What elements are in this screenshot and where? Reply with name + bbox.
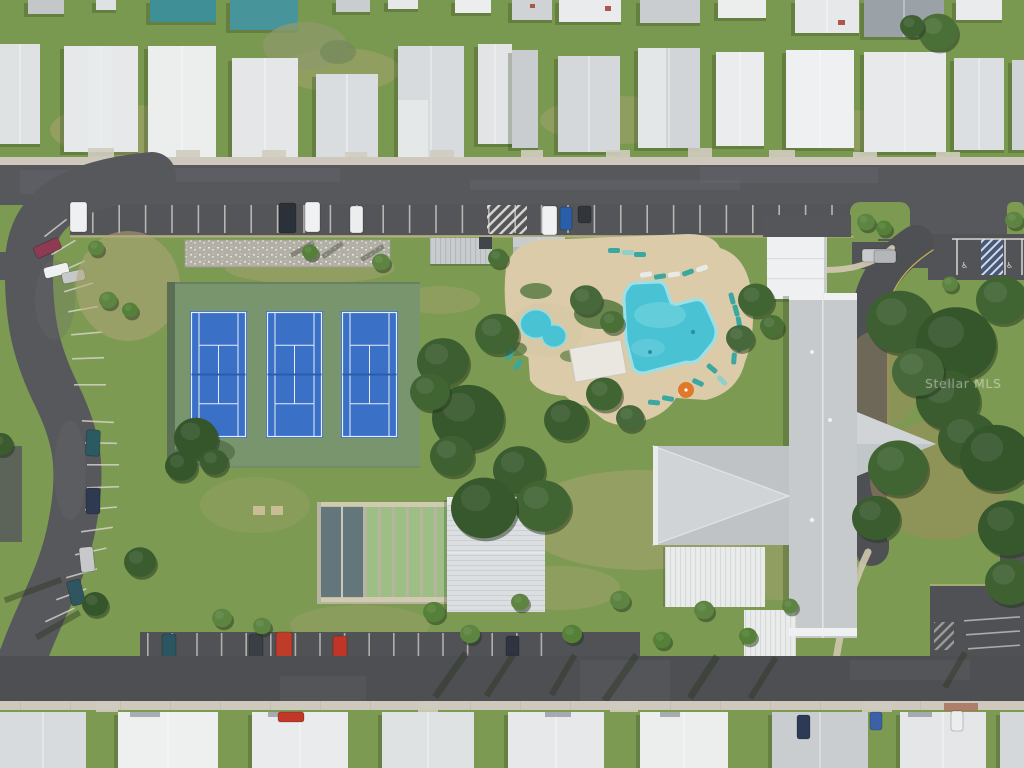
tree-highlight	[984, 282, 1007, 303]
bare-tree	[320, 40, 356, 64]
parking-line	[368, 633, 370, 658]
roof-ridge	[904, 52, 905, 152]
tree-highlight	[102, 294, 110, 301]
shuffleboard-court-green	[367, 506, 378, 598]
mobile-home-roof	[956, 0, 1002, 20]
driveway	[0, 446, 22, 542]
parking-line	[726, 205, 728, 233]
roof-ridge	[427, 712, 428, 768]
parking-line	[418, 633, 420, 658]
mobile-home-roof	[1000, 712, 1024, 768]
parking-line	[442, 633, 444, 658]
roof-ridge	[42, 712, 43, 768]
carport-detail	[479, 237, 492, 249]
roof-section	[638, 48, 666, 148]
tree-highlight	[944, 278, 951, 284]
tree-highlight	[876, 298, 907, 325]
umbrella-pole	[684, 388, 687, 391]
roof-ridge	[739, 52, 740, 146]
mobile-home-roof	[455, 0, 491, 13]
lounge-chair	[731, 352, 737, 364]
car	[86, 430, 101, 456]
tree-highlight	[437, 441, 457, 459]
tree-highlight	[575, 289, 589, 302]
tree-highlight	[613, 593, 622, 601]
gravel-court	[185, 240, 390, 267]
mobile-home-roof	[512, 0, 552, 20]
parking-line	[303, 205, 305, 233]
roof-ridge	[822, 293, 824, 638]
sidewalk-joint	[120, 701, 121, 710]
parking-line	[409, 205, 411, 233]
water-highlight	[634, 302, 686, 328]
tree-highlight	[501, 452, 524, 473]
tree-highlight	[730, 328, 743, 339]
parking-line	[382, 205, 384, 233]
tree-highlight	[860, 216, 868, 223]
mobile-home-roof	[96, 0, 116, 10]
tree-highlight	[416, 378, 434, 394]
roof-ridge	[978, 58, 979, 150]
no-parking-zone	[934, 622, 954, 650]
tree-highlight	[461, 485, 491, 511]
roof-ridge	[181, 46, 182, 158]
sidewalk-joint	[770, 701, 771, 710]
rooftop-detail	[130, 712, 160, 717]
roof-ridge	[683, 712, 684, 768]
parking-line	[145, 205, 147, 233]
parking-line	[171, 205, 173, 233]
lounge-chair	[634, 252, 646, 257]
parking-line	[952, 238, 1024, 240]
gable-trim	[789, 628, 857, 636]
shuffleboard-court-dark	[321, 506, 341, 598]
sidewalk-joint	[920, 701, 921, 710]
tree-highlight	[591, 381, 607, 395]
tree-highlight	[742, 630, 750, 637]
roof-ridge	[555, 712, 556, 768]
swimmer	[691, 330, 695, 334]
handicap-icon: ♿	[1006, 261, 1013, 270]
tree-highlight	[928, 316, 964, 348]
rooftop-detail	[605, 6, 611, 11]
driveway	[862, 702, 892, 712]
car	[951, 711, 963, 731]
roof-ridge	[346, 74, 347, 158]
parking-line	[221, 633, 223, 658]
parking-line	[1021, 239, 1023, 275]
shuffleboard-end-band	[321, 597, 447, 602]
cabana-roof	[767, 237, 827, 299]
parking-line	[541, 633, 543, 658]
tree-highlight	[514, 596, 522, 603]
tree-highlight	[697, 603, 706, 611]
gable-trim	[653, 446, 658, 545]
car	[542, 206, 557, 235]
parking-line	[673, 205, 675, 233]
lounge-chair	[648, 399, 660, 405]
parking-line	[147, 633, 149, 658]
rooftop-detail	[530, 4, 535, 8]
sidewalk-joint	[520, 701, 521, 710]
parking-line	[74, 384, 106, 386]
roof-ridge	[819, 50, 820, 148]
tree-highlight	[656, 634, 664, 641]
sidewalk-joint	[820, 701, 821, 710]
handicap-parking-lot	[928, 234, 1024, 280]
tree-highlight	[987, 507, 1014, 531]
roof-ridge	[826, 0, 827, 33]
parking-line	[118, 205, 120, 233]
lounge-chair	[608, 248, 620, 253]
car	[350, 206, 363, 233]
tree-highlight	[900, 354, 923, 375]
mobile-home-roof	[559, 0, 621, 22]
sidewalk-joint	[670, 701, 671, 710]
fence-shadow	[167, 282, 175, 468]
parking-line	[245, 633, 247, 658]
sidewalk-joint	[220, 701, 221, 710]
parking-line	[224, 205, 226, 233]
parking-line	[295, 633, 297, 658]
tree-highlight	[181, 423, 201, 441]
parking-line	[462, 205, 464, 233]
sidewalk-joint	[370, 701, 371, 710]
water-highlight	[631, 339, 665, 357]
roof-seam	[767, 258, 827, 259]
tree-highlight	[463, 627, 472, 635]
parking-line	[196, 633, 198, 658]
car	[870, 712, 882, 730]
parking-line	[699, 205, 701, 233]
tree-highlight	[878, 222, 885, 228]
mobile-home-roof	[336, 0, 370, 12]
tree-highlight	[215, 611, 224, 619]
car	[279, 203, 296, 233]
tree-highlight	[491, 251, 500, 259]
sidewalk-joint	[720, 701, 721, 710]
car	[578, 206, 591, 223]
horseshoe-pit	[253, 506, 265, 515]
aerial-scene: ♿♿	[0, 0, 1024, 768]
swimmer	[648, 350, 652, 354]
parking-line	[198, 205, 200, 233]
parking-line	[319, 633, 321, 658]
tree-highlight	[426, 604, 436, 613]
roof-ridge	[494, 44, 495, 144]
mobile-home-roof	[512, 50, 538, 148]
roof-vent	[828, 418, 832, 422]
tree-highlight	[971, 433, 1003, 462]
road-patch	[280, 676, 366, 702]
sidewalk-joint	[570, 701, 571, 710]
tree-highlight	[375, 256, 383, 263]
side-street	[0, 252, 32, 280]
tree-highlight	[924, 18, 942, 34]
tree-highlight	[170, 455, 184, 468]
road-patch	[700, 167, 890, 183]
tree-highlight	[425, 344, 448, 365]
driveway	[763, 215, 851, 237]
tree-highlight	[784, 600, 791, 606]
sidewalk-joint	[270, 701, 271, 710]
roof-seam	[767, 278, 827, 279]
garden-bed	[520, 283, 552, 299]
aerial-photo: ♿♿ Stellar MLS	[0, 0, 1024, 768]
dry-grass-patch	[200, 477, 310, 533]
sidewalk-joint	[470, 701, 471, 710]
no-parking-zone	[487, 205, 527, 234]
sidewalk-joint	[20, 701, 21, 710]
parking-line	[330, 205, 332, 233]
tree-highlight	[877, 447, 904, 471]
tree-highlight	[764, 318, 775, 328]
roof-ridge	[167, 712, 168, 768]
rooftop-detail	[660, 712, 680, 717]
horseshoe-pit	[271, 506, 283, 515]
mobile-home-roof	[1012, 60, 1024, 150]
roof-ridge	[264, 58, 265, 158]
road-patch	[54, 420, 86, 520]
car	[560, 207, 572, 230]
tree-highlight	[604, 314, 615, 324]
parking-line	[393, 633, 395, 658]
tree-highlight	[129, 551, 143, 564]
parking-line	[620, 205, 622, 233]
rooftop-detail	[908, 712, 932, 717]
parking-line	[87, 464, 119, 466]
mobile-home-roof	[718, 0, 766, 18]
shuffleboard-court-green	[381, 506, 392, 598]
court-divider	[341, 506, 343, 598]
shuffleboard-court-green	[395, 506, 406, 598]
car	[70, 202, 87, 232]
car	[79, 546, 96, 572]
shuffleboard-end-band	[321, 502, 447, 507]
roof-vent	[810, 350, 814, 354]
spa-pool	[543, 326, 566, 347]
parking-line	[594, 205, 596, 233]
parking-line	[956, 239, 958, 275]
tree-highlight	[620, 408, 633, 419]
tree-highlight	[482, 319, 502, 337]
shuffleboard-court-dark	[343, 506, 363, 598]
roof-ridge	[819, 712, 820, 768]
roof-ridge	[19, 44, 20, 144]
roof-ridge	[447, 552, 545, 554]
parking-line	[752, 205, 754, 233]
tree-highlight	[904, 18, 915, 28]
road-patch	[470, 180, 740, 190]
parking-line	[250, 205, 252, 233]
tree-highlight	[993, 565, 1016, 585]
car	[797, 715, 810, 739]
mobile-home-roof	[388, 0, 418, 9]
roof-section	[398, 100, 428, 158]
lounge-chair	[622, 250, 634, 255]
shuffleboard-court-green	[409, 506, 420, 598]
car	[86, 488, 100, 514]
roof-shade	[824, 237, 827, 299]
tree-highlight	[256, 620, 264, 627]
tree-highlight	[304, 246, 311, 252]
driveway	[418, 702, 438, 712]
rooftop-detail	[838, 20, 845, 25]
tree-highlight	[743, 287, 759, 301]
tree-highlight	[204, 452, 217, 463]
car	[305, 202, 320, 232]
paver-driveway	[944, 703, 978, 711]
parking-line	[270, 633, 272, 658]
parking-line	[646, 205, 648, 233]
mobile-home-roof	[150, 0, 216, 22]
rooftop-detail	[545, 712, 571, 717]
tree-highlight	[859, 501, 881, 520]
tree-highlight	[90, 242, 97, 248]
roof-section	[88, 46, 112, 152]
roof-vent	[810, 518, 814, 522]
car	[278, 712, 304, 722]
handicap-hatch-stall	[981, 239, 1003, 275]
parking-line	[491, 633, 493, 658]
roof-ridge	[588, 56, 589, 152]
tree-highlight	[523, 486, 548, 508]
roof-ridge	[668, 48, 669, 148]
roof-ridge	[430, 46, 431, 158]
parking-line	[435, 205, 437, 233]
sidewalk-joint	[320, 701, 321, 710]
driveway	[610, 702, 638, 712]
fence-line	[167, 282, 420, 284]
mobile-home-roof	[28, 0, 64, 14]
roof-ridge	[942, 712, 943, 768]
driveway	[96, 702, 118, 712]
tree-highlight	[565, 627, 574, 635]
clubhouse-annex-roof	[665, 547, 765, 607]
tree-highlight	[1008, 214, 1016, 221]
sidewalk-joint	[170, 701, 171, 710]
car	[874, 250, 896, 263]
sidewalk-joint	[70, 701, 71, 710]
handicap-icon: ♿	[961, 261, 968, 270]
mobile-home-roof	[640, 0, 700, 23]
tree-highlight	[86, 595, 98, 605]
parking-line	[277, 205, 279, 233]
tree-highlight	[551, 405, 571, 423]
shuffleboard-court-green	[423, 506, 434, 598]
tree-highlight	[124, 304, 131, 310]
